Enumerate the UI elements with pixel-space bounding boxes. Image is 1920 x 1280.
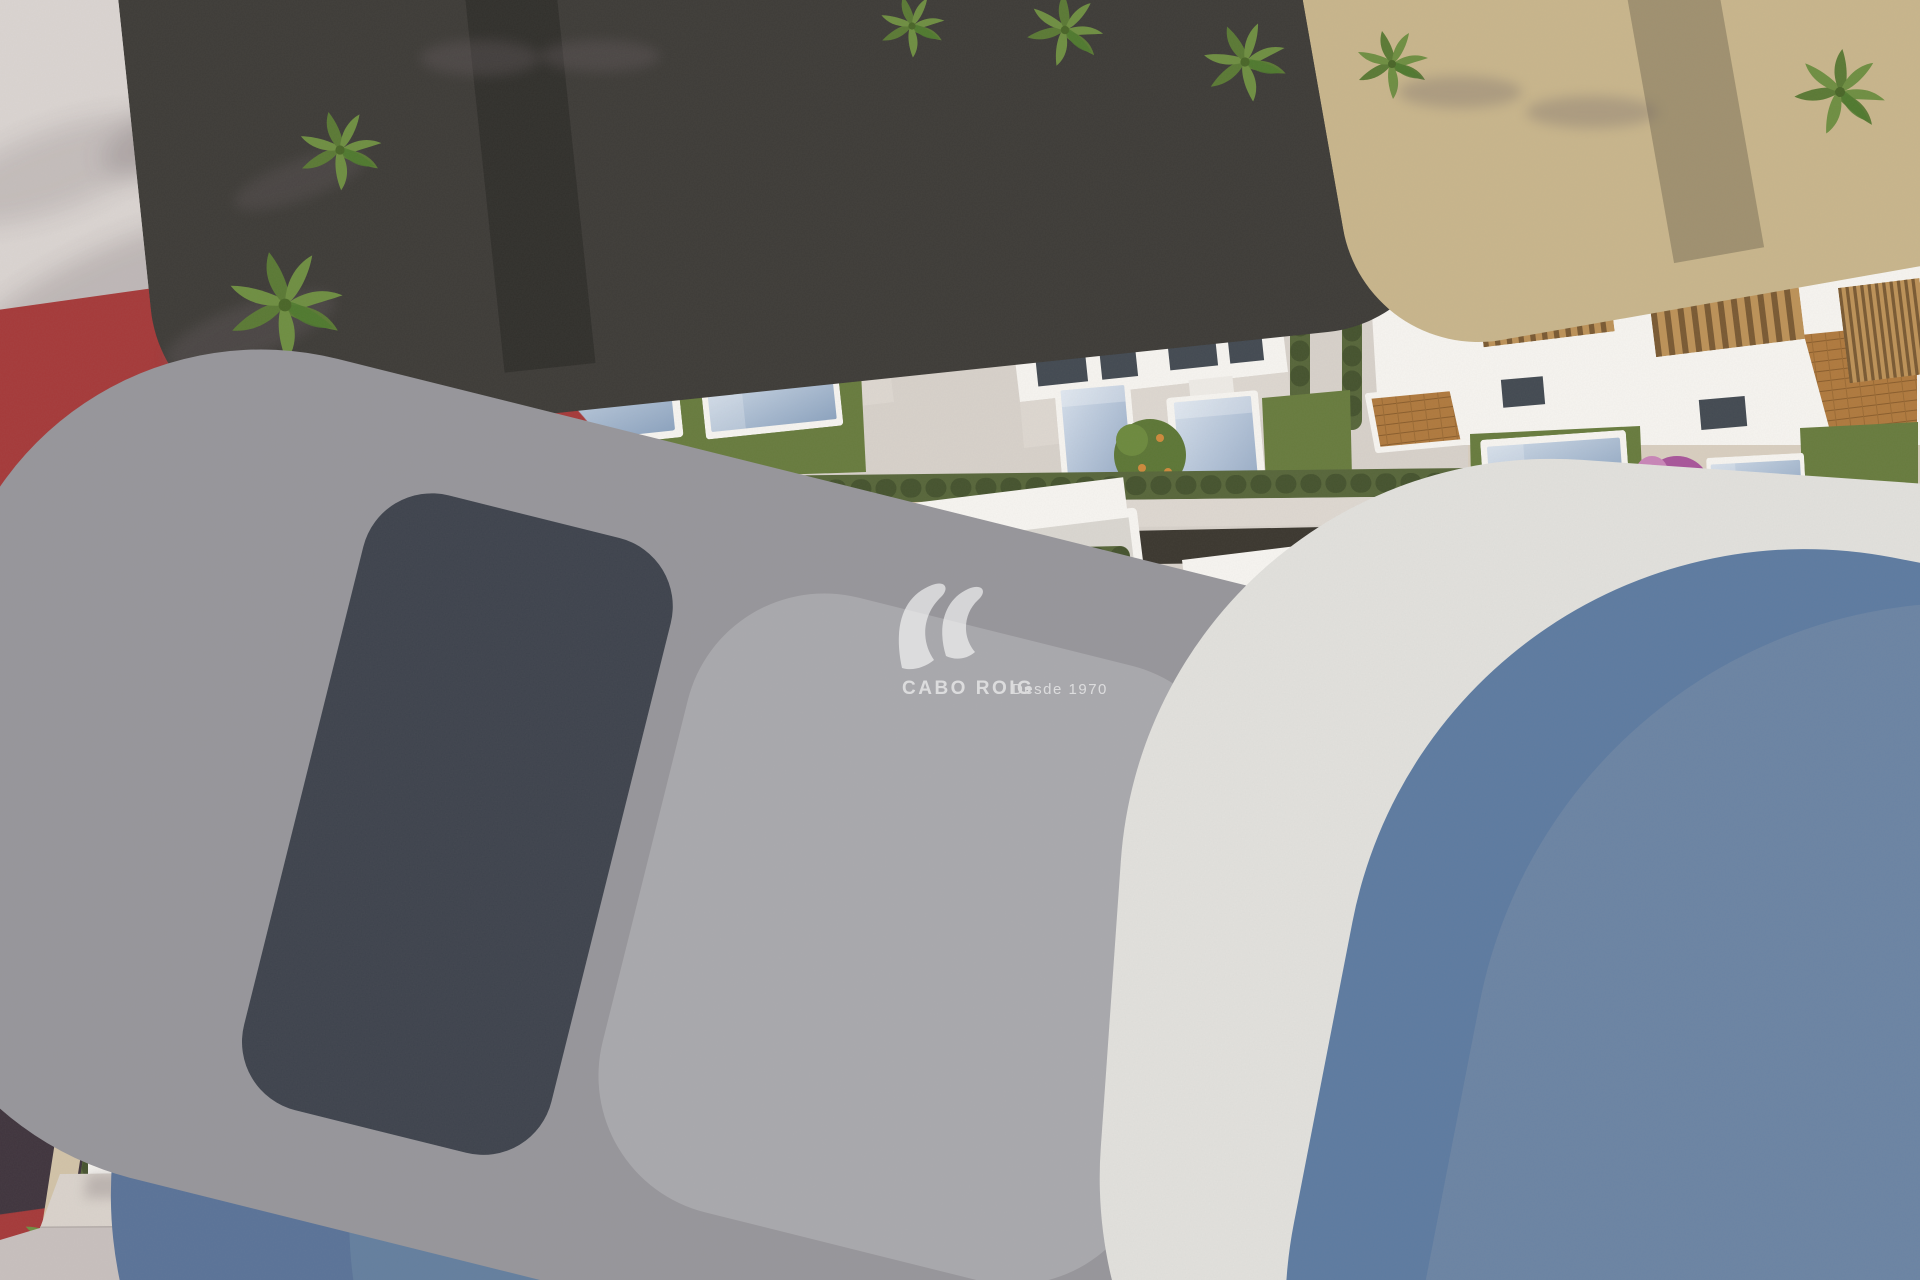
watermark-tagline: Desde 1970 [1012, 681, 1108, 698]
scene-canvas: CABO ROIG Desde 1970 [0, 0, 1920, 1280]
aerial-render: CABO ROIG Desde 1970 [0, 0, 1920, 1280]
